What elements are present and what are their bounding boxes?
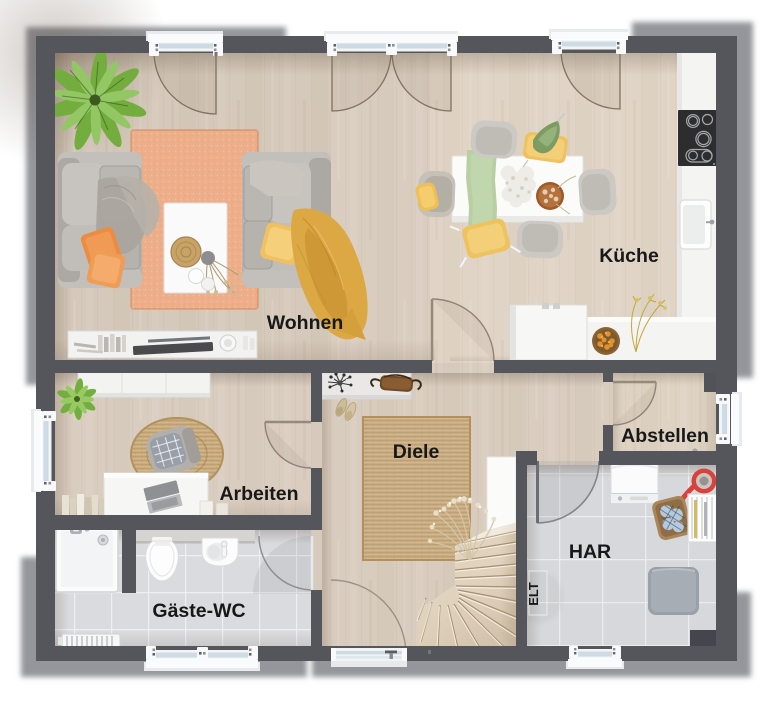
svg-text:Gäste-WC: Gäste-WC [152,600,245,622]
svg-text:Küche: Küche [599,245,659,267]
svg-text:Diele: Diele [393,441,440,463]
svg-text:Abstellen: Abstellen [621,425,709,447]
svg-text:HAR: HAR [569,541,611,563]
svg-text:ELT: ELT [526,582,541,606]
svg-text:Arbeiten: Arbeiten [219,483,298,505]
svg-text:Wohnen: Wohnen [267,312,344,334]
